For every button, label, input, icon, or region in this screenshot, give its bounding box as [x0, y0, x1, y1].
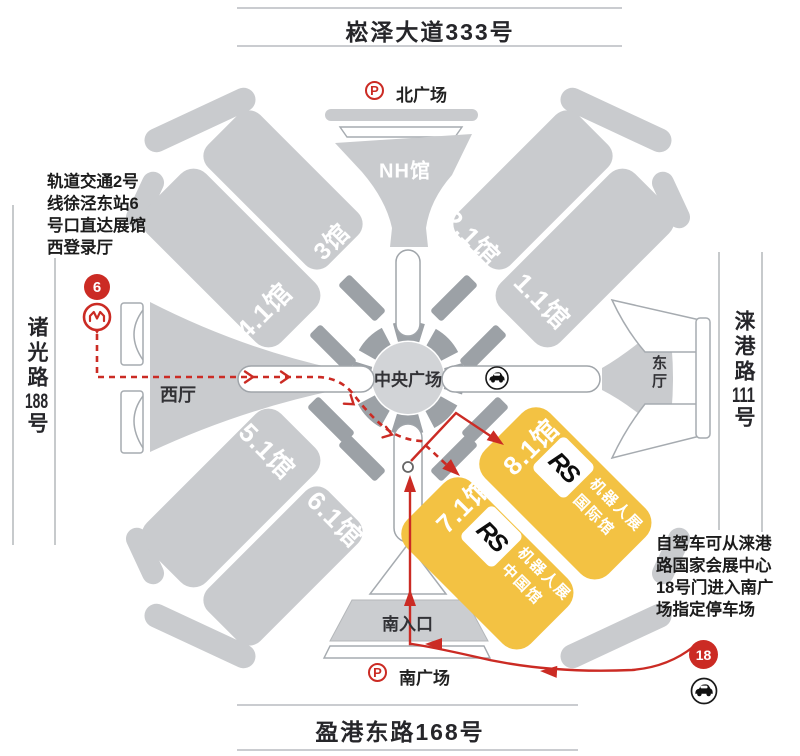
drive-note: 自驾车可从涞港 路国家会展中心 18号门进入南广 场指定停车场 [656, 533, 773, 621]
south-plaza-label: 南广场 [399, 664, 450, 689]
west-lobby-label: 西厅 [160, 381, 196, 407]
taxi-drop-off-icon [486, 367, 508, 389]
central-plaza-label: 中央广场 [374, 366, 442, 391]
south-entrance-label: 南入口 [382, 610, 433, 635]
road-left-label: 诸光路188号 [21, 316, 51, 437]
metro-logo-icon [84, 304, 110, 334]
venue-map: 崧泽大道333号 盈港东路168号 诸光路188号 涞港路111号 轨道交通2号… [0, 0, 800, 756]
south-entrance-steps [324, 646, 490, 658]
north-plaza-label: 北广场 [396, 81, 447, 106]
east-lobby-label: 东厅 [648, 355, 669, 391]
north-entrance-strip [340, 127, 462, 137]
hall-nh-label: NH馆 [379, 155, 431, 184]
metro-exit-6-badge: 6 [84, 274, 110, 300]
road-top-label: 崧泽大道333号 [235, 13, 625, 47]
gate-18-badge: 18 [689, 640, 718, 669]
parking-icon-south: P [368, 663, 387, 682]
road-right-label: 涞港路111号 [728, 310, 758, 431]
road-bottom-label: 盈港东路168号 [222, 713, 578, 747]
metro-note: 轨道交通2号 线徐泾东站6 号口直达展馆 西登录厅 [47, 171, 146, 259]
route-junction-node [403, 462, 413, 472]
parking-icon-north: P [365, 81, 384, 100]
car-gate-icon [692, 679, 717, 704]
